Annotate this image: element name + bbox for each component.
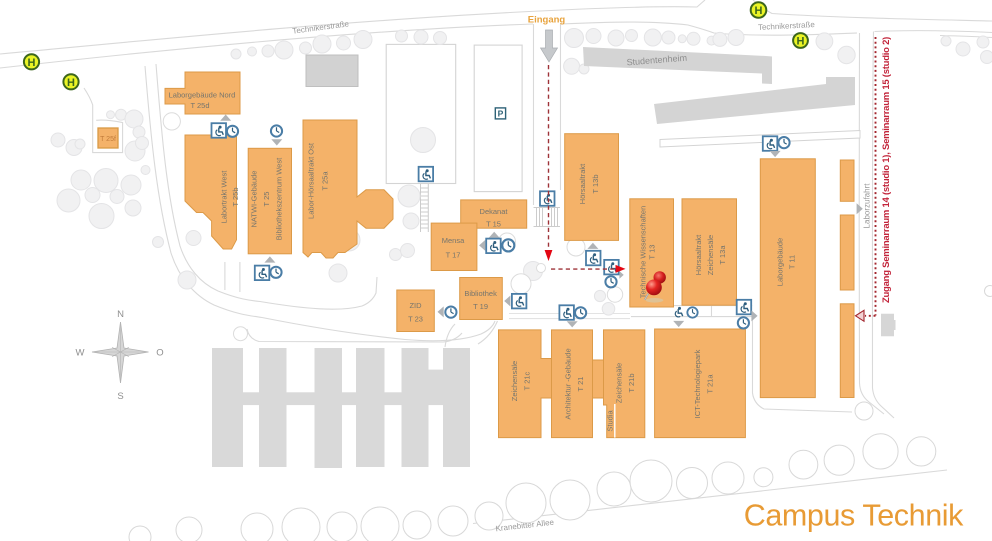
svg-text:Zeichensäle: Zeichensäle bbox=[706, 235, 715, 275]
svg-text:Technische Wissenschaften: Technische Wissenschaften bbox=[639, 206, 648, 299]
svg-text:Mensa: Mensa bbox=[442, 236, 465, 245]
svg-text:T 15: T 15 bbox=[486, 220, 501, 229]
svg-text:H: H bbox=[28, 57, 36, 69]
svg-text:NATWI-Gebäude: NATWI-Gebäude bbox=[250, 171, 259, 228]
svg-text:Zugang Seminarraum 14 (studio: Zugang Seminarraum 14 (studio 1), Semina… bbox=[881, 37, 892, 303]
svg-text:Hörsaaltrakt: Hörsaaltrakt bbox=[694, 234, 703, 275]
svg-text:T 21a: T 21a bbox=[706, 374, 715, 394]
svg-text:Zeichensäle: Zeichensäle bbox=[510, 361, 519, 401]
svg-text:T 25: T 25 bbox=[262, 192, 271, 207]
svg-text:T 25d: T 25d bbox=[190, 101, 209, 110]
svg-text:ICT-Technologiepark: ICT-Technologiepark bbox=[693, 349, 702, 418]
svg-text:H: H bbox=[755, 5, 763, 17]
svg-text:Zeichensäle: Zeichensäle bbox=[615, 363, 624, 403]
svg-text:T 13: T 13 bbox=[648, 245, 657, 260]
svg-text:T 21: T 21 bbox=[576, 377, 585, 392]
svg-text:Labor-Hörsaaltrakt Ost: Labor-Hörsaaltrakt Ost bbox=[307, 142, 316, 219]
svg-text:T 13a: T 13a bbox=[718, 245, 727, 265]
svg-text:Laborzufahrt: Laborzufahrt bbox=[863, 183, 872, 229]
svg-text:T 25f: T 25f bbox=[100, 136, 116, 143]
svg-text:Hörsaaltrakt: Hörsaaltrakt bbox=[578, 163, 587, 204]
svg-text:T 25a: T 25a bbox=[321, 171, 330, 191]
svg-text:T 23: T 23 bbox=[408, 315, 423, 324]
svg-text:Eingang: Eingang bbox=[528, 15, 566, 26]
svg-text:T 21c: T 21c bbox=[523, 371, 532, 390]
svg-text:Dekanat: Dekanat bbox=[480, 207, 509, 216]
svg-text:H: H bbox=[67, 77, 75, 89]
svg-text:T 13b: T 13b bbox=[591, 174, 600, 193]
svg-text:P: P bbox=[498, 109, 504, 119]
svg-text:Bibliothek: Bibliothek bbox=[464, 289, 497, 298]
svg-text:T 25b: T 25b bbox=[231, 187, 240, 206]
svg-text:Labortrakt West: Labortrakt West bbox=[220, 170, 229, 224]
svg-text:Bibliothekszentrum West: Bibliothekszentrum West bbox=[275, 157, 284, 240]
svg-text:ZID: ZID bbox=[409, 301, 422, 310]
svg-text:Laborgebäude: Laborgebäude bbox=[776, 238, 785, 286]
svg-text:H: H bbox=[797, 36, 805, 48]
svg-text:Laborgebäude Nord: Laborgebäude Nord bbox=[169, 91, 236, 100]
svg-text:Campus Technik: Campus Technik bbox=[744, 499, 964, 533]
svg-text:N: N bbox=[117, 309, 124, 320]
svg-text:T 19: T 19 bbox=[473, 302, 488, 311]
svg-text:O: O bbox=[156, 348, 163, 359]
svg-text:Studia: Studia bbox=[606, 410, 615, 432]
svg-text:S: S bbox=[117, 391, 123, 402]
svg-text:T 17: T 17 bbox=[446, 251, 461, 260]
svg-text:W: W bbox=[76, 348, 85, 359]
svg-text:T 11: T 11 bbox=[788, 255, 797, 269]
svg-text:T 21b: T 21b bbox=[627, 373, 636, 392]
svg-text:Architektur -Gebäude: Architektur -Gebäude bbox=[564, 348, 573, 419]
